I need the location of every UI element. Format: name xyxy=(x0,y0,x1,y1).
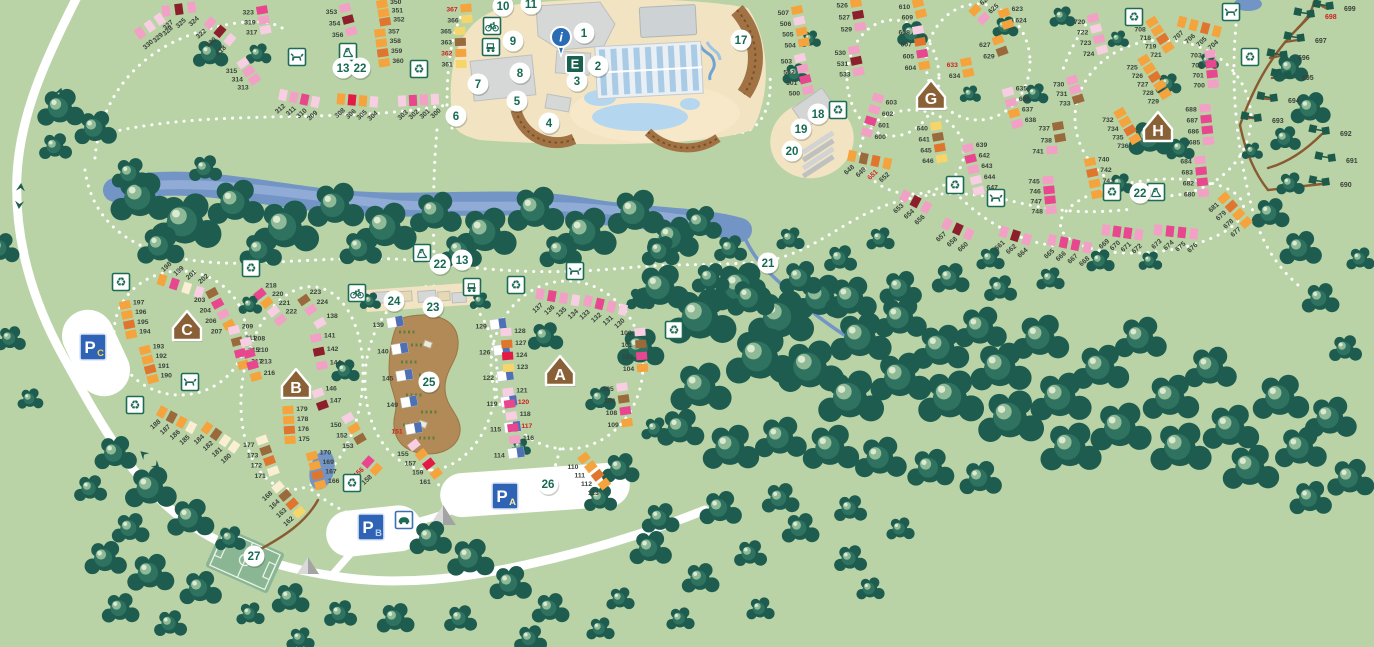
cottage-number: 353 xyxy=(326,9,338,16)
svg-text:♻: ♻ xyxy=(130,398,141,412)
marker-number: 25 xyxy=(423,377,436,389)
cottage-number: 605 xyxy=(903,53,915,60)
svg-text:♻: ♻ xyxy=(414,62,425,76)
marker-number: 19 xyxy=(795,124,808,136)
cottage-number: 702 xyxy=(1191,63,1203,70)
area-letter: C xyxy=(181,322,193,339)
cottage-number: 155 xyxy=(397,451,409,458)
cottage-number: 624 xyxy=(1015,17,1027,24)
cottage-number: 218 xyxy=(265,283,277,290)
cottage-number: 169 xyxy=(323,459,335,466)
bike-icon xyxy=(349,285,366,302)
cottage-number: 721 xyxy=(1150,52,1162,59)
dog-icon xyxy=(289,49,306,66)
cottage-number: 737 xyxy=(1039,126,1051,133)
parking-sub-letter: C xyxy=(97,348,104,359)
cottage-number: 323 xyxy=(243,10,255,17)
parking-sign-B: PB xyxy=(358,514,384,540)
cottage-number: 146 xyxy=(325,385,337,392)
cottage-number: 147 xyxy=(330,398,342,405)
cottage-number: 177 xyxy=(243,442,255,449)
cottage-number: 206 xyxy=(205,318,217,325)
lagoon xyxy=(592,103,688,131)
svg-text:♻: ♻ xyxy=(669,323,680,337)
cottage-number: 195 xyxy=(137,319,149,326)
cottage-number: 117 xyxy=(521,423,532,430)
cottage-number: 203 xyxy=(194,297,206,304)
marker-number: 24 xyxy=(388,296,401,308)
recycle-icon: ♻ xyxy=(127,397,144,414)
cottage-number: 367 xyxy=(446,6,458,13)
cottage-number: 505 xyxy=(782,32,794,39)
cottage-number: 623 xyxy=(1012,6,1024,13)
play-icon xyxy=(414,245,431,262)
cottage-number: 223 xyxy=(310,289,322,296)
cottage-number: 175 xyxy=(298,436,310,443)
cottage-number: 703 xyxy=(1190,53,1202,60)
cottage-number: 638 xyxy=(1025,117,1037,124)
parking-letter: P xyxy=(362,518,373,537)
cottage-number: 607 xyxy=(901,41,913,48)
cottage-number: 602 xyxy=(882,111,894,118)
tree-tent-number: 698 xyxy=(1325,14,1337,21)
cottage-number: 157 xyxy=(405,460,417,467)
parking-sub-letter: A xyxy=(509,497,516,508)
cottage-number: 138 xyxy=(326,313,338,320)
cottage-number: 118 xyxy=(520,411,531,418)
cottage-number: 738 xyxy=(1041,137,1053,144)
cottage-number: 701 xyxy=(1192,73,1204,80)
cottage-number: 315 xyxy=(226,68,238,75)
marker-number: 21 xyxy=(762,258,775,270)
area-letter: G xyxy=(925,91,937,108)
cottage-number: 120 xyxy=(518,399,530,406)
solar-roof-building xyxy=(639,5,696,38)
cottage-number: 129 xyxy=(475,324,487,331)
marker-number: 18 xyxy=(812,109,825,121)
cottage-number: 527 xyxy=(839,14,851,21)
cottage-number: 507 xyxy=(778,10,790,17)
station-badge-E: E xyxy=(566,55,584,73)
cottage-number: 726 xyxy=(1132,73,1144,80)
cottage-number: 629 xyxy=(983,53,995,60)
lagoon xyxy=(680,98,700,110)
cottage-number: 645 xyxy=(920,147,932,154)
recycle-icon: ♻ xyxy=(344,475,361,492)
cottage-number: 637 xyxy=(1022,106,1034,113)
cottage-number: 506 xyxy=(780,21,792,28)
cottage-number: 122 xyxy=(483,375,495,382)
marker-number: 26 xyxy=(542,479,555,491)
cottage-number: 314 xyxy=(232,76,244,83)
cottage-number: 106 xyxy=(604,398,616,405)
cottage-number: 115 xyxy=(490,427,501,434)
recycle-icon: ♻ xyxy=(113,274,130,291)
cottage-number: 684 xyxy=(1180,159,1192,166)
cottage-number: 159 xyxy=(412,470,424,477)
cottage-number: 150 xyxy=(330,422,342,429)
marker-number: 23 xyxy=(427,302,440,314)
marker-number: 22 xyxy=(354,63,367,75)
cottage-number: 116 xyxy=(523,435,534,442)
cottage-number: 153 xyxy=(342,443,354,450)
cottage-number: 729 xyxy=(1148,99,1160,106)
marker-number: 13 xyxy=(337,63,350,75)
cottage-number: 720 xyxy=(1074,19,1086,26)
cottage-number: 700 xyxy=(1194,82,1206,89)
tree-tent-number: 699 xyxy=(1344,6,1356,13)
cottage-number: 526 xyxy=(837,3,849,10)
cottage-number: 192 xyxy=(155,353,167,360)
cottage-number: 601 xyxy=(878,122,890,129)
cottage-number: 128 xyxy=(514,328,526,335)
cottage-number: 609 xyxy=(902,14,914,21)
cottage-number: 121 xyxy=(516,387,528,394)
cottage-number: 723 xyxy=(1080,40,1092,47)
cottage-number: 113 xyxy=(588,490,599,497)
cottage-number: 733 xyxy=(1059,101,1071,108)
marker-number: 5 xyxy=(514,96,521,108)
cottage-number: 176 xyxy=(298,426,310,433)
cottage-number: 194 xyxy=(139,329,151,336)
marker-number: 1 xyxy=(581,28,588,40)
cottage-number: 640 xyxy=(917,126,929,133)
cottage-number: 222 xyxy=(286,309,298,316)
cottage-number: 641 xyxy=(918,136,930,143)
cottage-number: 114 xyxy=(494,452,505,459)
recycle-icon: ♻ xyxy=(411,61,428,78)
area-letter: H xyxy=(1152,123,1164,140)
cottage-number: 643 xyxy=(981,163,993,170)
cottage-number: 646 xyxy=(922,158,934,165)
info-letter: i xyxy=(559,30,563,45)
cottage-number: 740 xyxy=(1098,156,1110,163)
svg-text:♻: ♻ xyxy=(347,476,358,490)
cottage-number: 161 xyxy=(419,479,431,486)
recycle-icon: ♻ xyxy=(1126,9,1143,26)
marker-number: 27 xyxy=(248,551,261,563)
marker-number: 22 xyxy=(434,259,447,271)
bike-icon xyxy=(484,18,501,35)
recycle-icon: ♻ xyxy=(666,322,683,339)
area-letter: A xyxy=(554,367,566,384)
car-icon xyxy=(396,512,413,529)
tree-tent-number: 690 xyxy=(1340,182,1352,189)
cottage-number: 724 xyxy=(1083,51,1095,58)
cottage-number: 686 xyxy=(1188,129,1200,136)
cottage-number: 356 xyxy=(332,32,344,39)
cottage-number: 196 xyxy=(135,309,147,316)
cottage-number: 124 xyxy=(516,352,528,359)
cottage-number: 719 xyxy=(1145,44,1157,51)
recycle-icon: ♻ xyxy=(947,177,964,194)
cottage-number: 682 xyxy=(1183,181,1195,188)
recycle-icon: ♻ xyxy=(830,102,847,119)
parking-letter: P xyxy=(84,338,95,357)
cottage-number: 108 xyxy=(606,410,618,417)
cottage-number: 633 xyxy=(947,62,959,69)
cottage-number: 730 xyxy=(1053,82,1065,89)
cottage-number: 734 xyxy=(1107,126,1119,133)
recycle-icon: ♻ xyxy=(1242,49,1259,66)
cottage-number: 608 xyxy=(899,30,911,37)
svg-text:♻: ♻ xyxy=(833,103,844,117)
cottage-number: 736 xyxy=(1117,143,1129,150)
cottage-number: 191 xyxy=(158,363,170,370)
marker-number: 7 xyxy=(475,79,481,91)
cottage-number: 747 xyxy=(1030,199,1042,206)
cottage-number: 610 xyxy=(899,4,911,11)
dog-icon xyxy=(567,263,584,280)
cottage-number: 365 xyxy=(440,29,452,36)
cottage-number: 123 xyxy=(517,364,529,371)
area-letter: B xyxy=(290,380,302,397)
recycle-icon: ♻ xyxy=(243,260,260,277)
svg-text:♻: ♻ xyxy=(1245,50,1256,64)
cottage-number: 127 xyxy=(515,340,527,347)
cottage-number: 644 xyxy=(984,174,996,181)
cottage-number: 144 xyxy=(330,360,342,367)
cottage-number: 685 xyxy=(1189,139,1201,146)
cottage-number: 110 xyxy=(567,464,578,471)
cottage-number: 530 xyxy=(835,50,847,57)
cottage-number: 213 xyxy=(260,358,272,365)
cart-icon xyxy=(483,39,500,56)
cottage-number: 210 xyxy=(257,347,269,354)
cottage-number: 634 xyxy=(949,73,961,80)
cottage-number: 139 xyxy=(373,322,385,329)
dog-icon xyxy=(182,374,199,391)
cottage-number: 363 xyxy=(441,40,453,47)
tree-tent-number: 694 xyxy=(1288,98,1300,105)
marker-number: 2 xyxy=(595,61,601,73)
cottage-number: 529 xyxy=(841,26,853,33)
cottage-number: 152 xyxy=(336,433,348,440)
cottage-number: 220 xyxy=(272,291,284,298)
cottage-number: 503 xyxy=(781,59,793,66)
cottage-number: 718 xyxy=(1140,35,1152,42)
cottage-number: 357 xyxy=(388,28,400,35)
svg-text:♻: ♻ xyxy=(511,278,522,292)
cottage-number: 735 xyxy=(1112,135,1124,142)
cottage-number: 313 xyxy=(237,85,249,92)
cottage-number: 354 xyxy=(329,20,341,27)
cottage-number: 119 xyxy=(487,401,498,408)
cottage-number: 600 xyxy=(875,134,887,141)
cottage-number: 103 xyxy=(622,354,634,361)
cottage-number: 745 xyxy=(1028,179,1040,186)
marker-number: 22 xyxy=(1134,188,1147,200)
cottage-number: 216 xyxy=(264,370,276,377)
marker-number: 11 xyxy=(525,0,538,11)
cottage-number: 208 xyxy=(254,335,266,342)
cottage-number: 209 xyxy=(242,324,254,331)
cottage-number: 501 xyxy=(786,80,798,87)
cottage-number: 688 xyxy=(1185,107,1197,114)
holiday-park-map: 3303293283273253243223203183233193173153… xyxy=(0,0,1374,647)
cottage-number: 167 xyxy=(325,469,337,476)
cottage-number: 317 xyxy=(246,29,258,36)
tree-tent-number: 697 xyxy=(1315,38,1327,45)
cottage-number: 732 xyxy=(1102,117,1114,124)
marker-number: 17 xyxy=(735,35,748,47)
cottage-number: 197 xyxy=(133,299,145,306)
cottage-number: 366 xyxy=(447,17,459,24)
marker-number: 9 xyxy=(510,36,516,48)
cottage-number: 504 xyxy=(784,42,796,49)
cottage-number: 207 xyxy=(211,329,223,336)
marker-number: 20 xyxy=(786,146,799,158)
recycle-icon: ♻ xyxy=(1104,184,1121,201)
dog-icon xyxy=(988,190,1005,207)
cottage-number: 170 xyxy=(320,449,332,456)
cottage-number: 126 xyxy=(479,349,491,356)
cottage-number: 748 xyxy=(1032,208,1044,215)
parking-sign-A: PA xyxy=(492,483,518,509)
cottage-number: 680 xyxy=(1184,191,1196,198)
cottage-number: 741 xyxy=(1032,148,1044,155)
cottage-number: 140 xyxy=(377,349,389,356)
svg-text:♻: ♻ xyxy=(116,275,127,289)
marker-number: 10 xyxy=(497,1,510,13)
cottage-number: 142 xyxy=(327,346,339,353)
cottage-number: 362 xyxy=(441,51,453,58)
pool-hall xyxy=(595,41,704,98)
cottage-number: 725 xyxy=(1126,65,1138,72)
cottage-number: 319 xyxy=(244,19,256,26)
cottage-number: 708 xyxy=(1134,27,1146,34)
cottage-number: 639 xyxy=(976,142,988,149)
cottage-number: 687 xyxy=(1187,118,1199,125)
cart-icon xyxy=(464,279,481,296)
cottage-number: 171 xyxy=(254,473,266,480)
cottage-number: 179 xyxy=(296,406,308,413)
cottage-number: 352 xyxy=(393,16,405,23)
main-building xyxy=(536,2,615,50)
tree-tent-number: 692 xyxy=(1340,131,1352,138)
cottage-number: 358 xyxy=(390,38,402,45)
station-letter: E xyxy=(571,57,580,72)
cottage-number: 502 xyxy=(783,69,795,76)
marker-number: 6 xyxy=(453,111,459,123)
parking-sub-letter: B xyxy=(375,528,382,539)
svg-text:♻: ♻ xyxy=(246,261,257,275)
park-map-canvas: 3303293283273253243223203183233193173153… xyxy=(0,0,1374,647)
cottage-number: 731 xyxy=(1056,91,1068,98)
tree-tent-number: 695 xyxy=(1302,75,1314,82)
marker-number: 13 xyxy=(456,255,469,267)
cottage-number: 500 xyxy=(789,91,801,98)
cottage-number: 111 xyxy=(574,472,585,479)
cottage-number: 359 xyxy=(391,48,403,55)
cottage-number: 727 xyxy=(1137,82,1149,89)
cottage-number: 627 xyxy=(979,42,991,49)
cottage-number: 193 xyxy=(153,344,165,351)
tree-tent-number: 693 xyxy=(1272,118,1284,125)
marker-number: 8 xyxy=(517,68,524,80)
cottage-number: 728 xyxy=(1142,90,1154,97)
cottage-number: 151 xyxy=(391,429,403,436)
marker-number: 3 xyxy=(574,76,580,88)
cottage-number: 221 xyxy=(279,300,291,307)
svg-text:♻: ♻ xyxy=(950,178,961,192)
cottage-number: 172 xyxy=(251,463,263,470)
cottage-number: 604 xyxy=(905,65,917,72)
cottage-number: 350 xyxy=(390,0,402,6)
cottage-number: 636 xyxy=(1019,96,1031,103)
cottage-number: 104 xyxy=(623,366,635,373)
cottage-number: 149 xyxy=(387,402,399,409)
cottage-number: 642 xyxy=(979,152,991,159)
parking-letter: P xyxy=(496,487,507,506)
cottage-number: 112 xyxy=(581,481,592,488)
cottage-number: 722 xyxy=(1077,30,1089,37)
cottage-number: 204 xyxy=(200,307,212,314)
tree-tent-number: 696 xyxy=(1298,55,1310,62)
cottage-number: 603 xyxy=(886,100,898,107)
cottage-number: 141 xyxy=(324,332,336,339)
cottage-number: 746 xyxy=(1029,189,1041,196)
cottage-number: 361 xyxy=(441,62,453,69)
tree-tent-number: 691 xyxy=(1346,158,1358,165)
parking-sign-C: PC xyxy=(80,334,106,360)
cottage-number: 105 xyxy=(602,386,614,393)
cottage-number: 533 xyxy=(839,72,851,79)
cottage-number: 109 xyxy=(607,422,619,429)
cottage-number: 100 xyxy=(620,330,632,337)
cottage-number: 683 xyxy=(1182,170,1194,177)
svg-text:♻: ♻ xyxy=(1129,10,1140,24)
cottage-number: 173 xyxy=(247,452,259,459)
dog-icon xyxy=(1223,4,1240,21)
cottage-number: 351 xyxy=(392,8,404,15)
cottage-number: 531 xyxy=(837,61,849,68)
cottage-number: 360 xyxy=(392,58,404,65)
cottage-number: 190 xyxy=(161,373,173,380)
cottage-number: 178 xyxy=(297,416,309,423)
marker-number: 4 xyxy=(546,118,553,130)
cottage-number: 166 xyxy=(328,478,340,485)
cottage-number: 742 xyxy=(1100,167,1112,174)
cottage-number: 635 xyxy=(1016,85,1028,92)
recycle-icon: ♻ xyxy=(508,277,525,294)
cottage-number: 224 xyxy=(317,299,329,306)
cottage-number: 101 xyxy=(621,342,633,349)
cottage-number: 145 xyxy=(382,375,394,382)
svg-text:♻: ♻ xyxy=(1107,185,1118,199)
